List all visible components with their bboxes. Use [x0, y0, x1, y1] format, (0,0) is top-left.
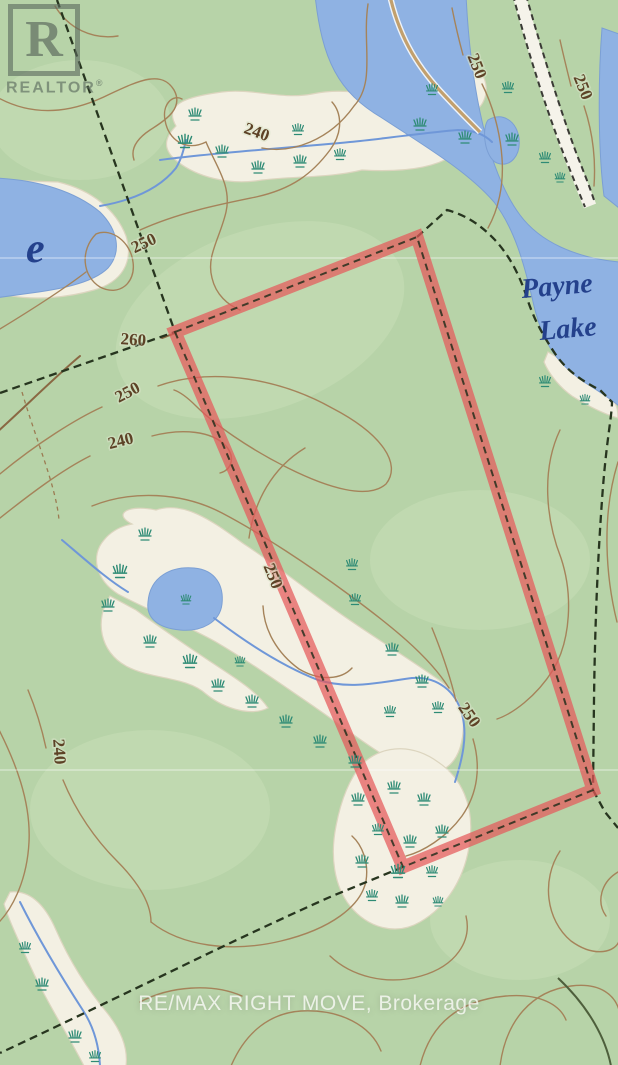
contour-elevation-label: 240 [49, 738, 70, 765]
realtor-logo-box: R [8, 4, 80, 76]
map-screenshot: 240250260250240250250250250240 Payne Lak… [0, 0, 618, 1065]
contour-elevation-label: 260 [120, 329, 147, 350]
realtor-logo: R REALTOR® [6, 4, 105, 97]
payne-lake-label-line2: Lake [537, 311, 598, 347]
left-lake-partial-label: e [26, 226, 45, 272]
realtor-logo-letter: R [25, 14, 63, 66]
realtor-logo-word-text: REALTOR [6, 79, 96, 96]
brokerage-watermark: RE/MAX RIGHT MOVE, Brokerage [0, 992, 618, 1016]
topographic-map-canvas: 240250260250240250250250250240 Payne Lak… [0, 0, 618, 1065]
registered-mark: ® [96, 78, 105, 88]
realtor-logo-word: REALTOR® [6, 78, 105, 97]
payne-lake-label-line1: Payne [519, 268, 594, 305]
